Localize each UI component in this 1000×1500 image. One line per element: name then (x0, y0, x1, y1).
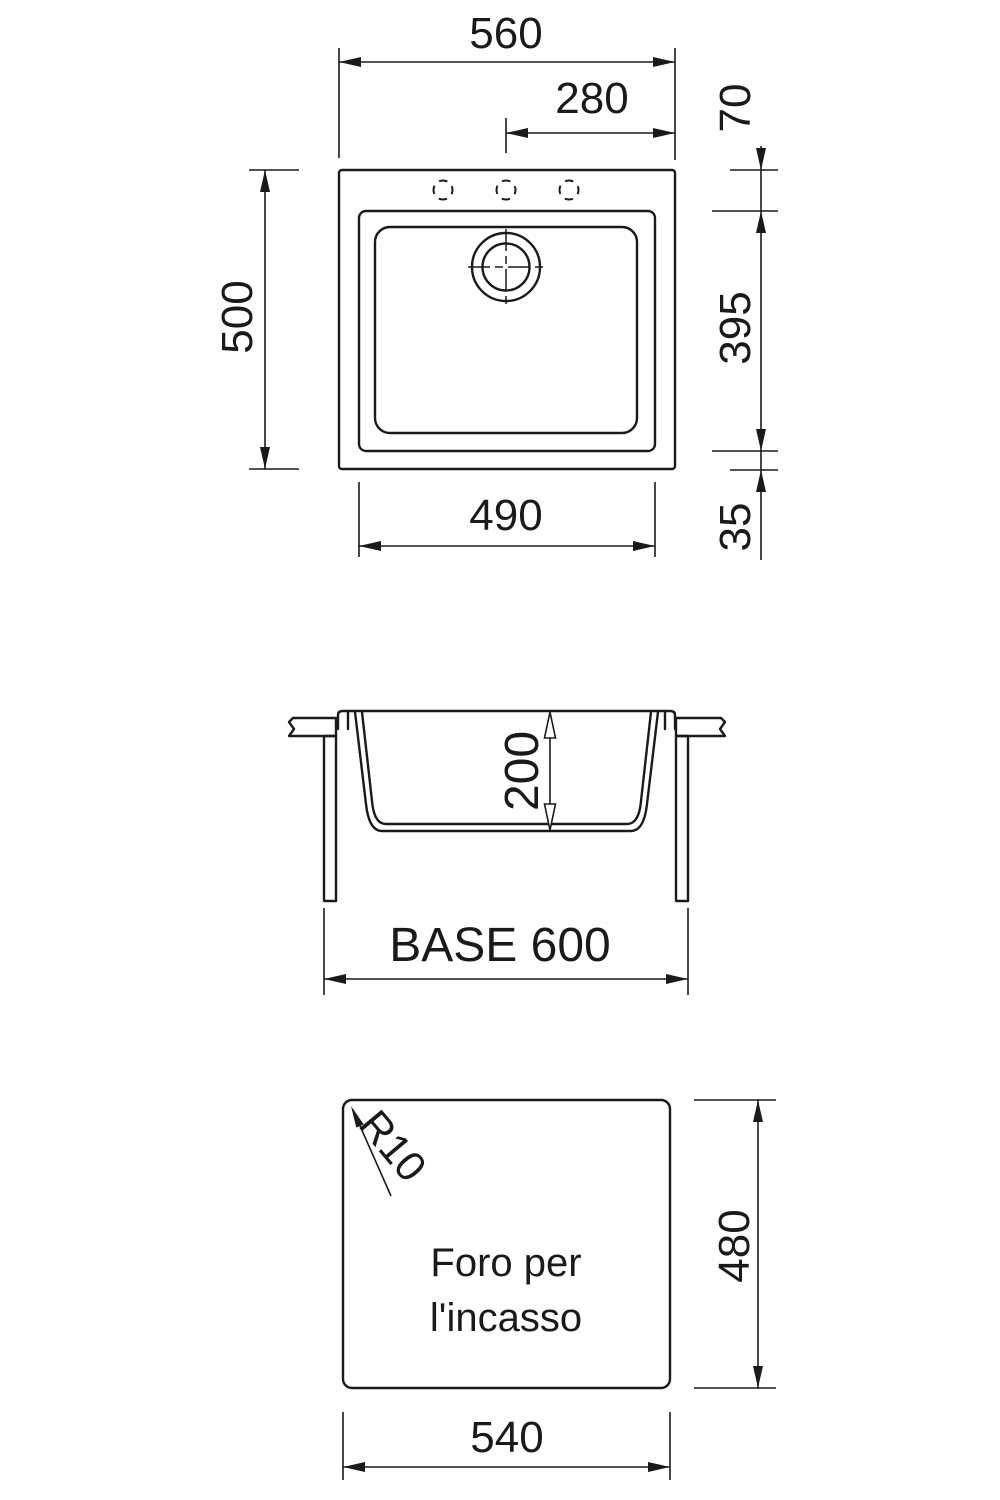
arrowhead (633, 541, 655, 551)
cutout-view: R10 Foro per l'incasso (343, 1100, 670, 1388)
dim-label: BASE 600 (389, 919, 610, 972)
sink-outer-edge (339, 170, 675, 469)
countertop-right (676, 718, 725, 736)
dim-label: 480 (710, 1209, 759, 1282)
cabinet-side-right (676, 736, 688, 901)
dim-label: 500 (213, 280, 262, 353)
cutout-note-line1: Foro per (430, 1241, 581, 1285)
arrowhead (648, 1462, 670, 1472)
dim-label: 395 (711, 291, 760, 364)
arrowhead (653, 57, 675, 67)
dim-bowl-depth: 200 (496, 712, 556, 830)
dim-tap-to-edge: 280 (506, 74, 675, 153)
arrowhead (324, 974, 346, 984)
arrowhead (756, 211, 766, 233)
tap-hole-center (497, 181, 516, 200)
arrowhead (343, 1462, 365, 1472)
tap-hole-right (560, 181, 579, 200)
arrowhead (260, 447, 270, 469)
top-view (339, 170, 675, 469)
arrowhead (753, 1100, 763, 1122)
dim-label: 280 (555, 74, 628, 123)
dim-base: BASE 600 (324, 908, 688, 995)
arrowhead (339, 57, 361, 67)
dim-label: 200 (496, 731, 549, 811)
dim-cutout-depth: 480 (694, 1100, 776, 1388)
tap-hole-left (434, 181, 453, 200)
dim-label: 540 (470, 1413, 543, 1462)
cabinet-side-left (324, 736, 336, 901)
arrowhead (653, 128, 675, 138)
dim-right-chain: 70 395 35 (711, 84, 778, 560)
dim-label: 70 (711, 84, 760, 133)
countertop-left (289, 718, 336, 736)
sink-technical-drawing: 560 280 500 70 395 35 (0, 0, 1000, 1500)
arrowhead (359, 541, 381, 551)
arrowhead (756, 470, 766, 492)
cutout-note-line2: l'incasso (430, 1296, 582, 1340)
dim-label: 35 (711, 503, 760, 552)
dim-cutout-width: 540 (343, 1412, 670, 1480)
drawing-sheet: 560 280 500 70 395 35 (0, 0, 1000, 1500)
drain (468, 229, 545, 306)
arrowhead (756, 148, 766, 170)
arrowhead (260, 170, 270, 192)
sink-rim-profile (338, 711, 675, 729)
radius-label: R10 (350, 1101, 436, 1190)
arrowhead (506, 128, 528, 138)
bowl-rim (359, 211, 655, 451)
dim-label: 560 (469, 9, 542, 58)
dim-overall-depth: 500 (213, 170, 299, 469)
arrowhead (753, 1366, 763, 1388)
arrowhead (756, 429, 766, 451)
dim-label: 490 (469, 491, 542, 540)
arrowhead (666, 974, 688, 984)
dim-bowl-width: 490 (359, 482, 655, 557)
